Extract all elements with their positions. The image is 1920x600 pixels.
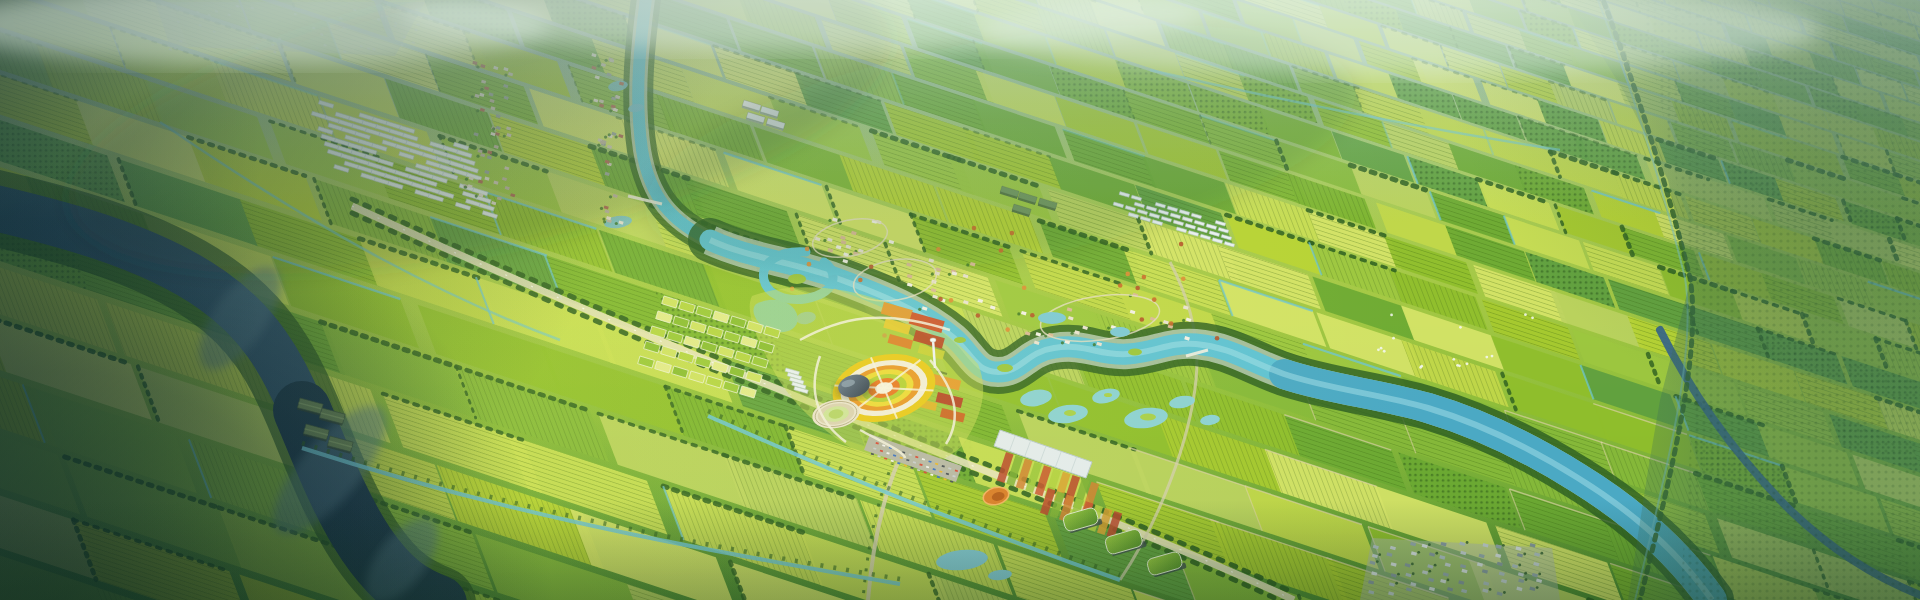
aerial-render-figure — [0, 0, 1920, 600]
aerial-masterplan-image — [0, 0, 1920, 600]
